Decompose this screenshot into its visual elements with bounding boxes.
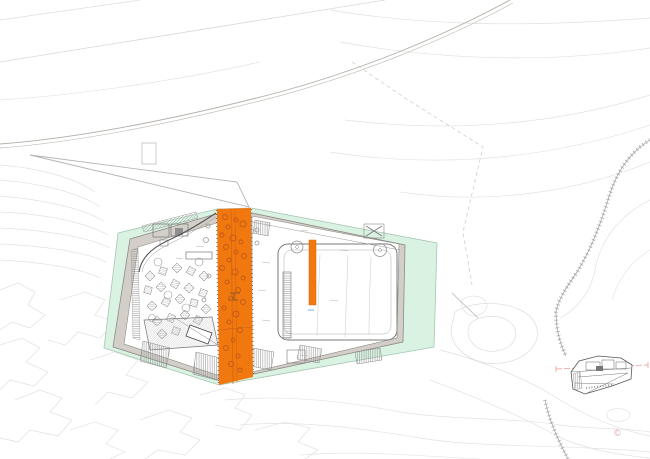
stair-hatch (250, 348, 274, 370)
contour-line (400, 162, 650, 197)
stair-hatch (253, 220, 270, 236)
contour-oval (607, 409, 630, 422)
roof-plane (30, 155, 249, 207)
contour-line (0, 0, 140, 20)
contour-line (345, 95, 650, 126)
contour-line (0, 165, 95, 192)
contour-line (0, 0, 385, 62)
trail-line (452, 293, 478, 318)
contour-line (0, 260, 100, 278)
contour-line (340, 42, 650, 58)
contour-line-jagged (0, 338, 48, 390)
contour-line-jagged (0, 283, 45, 330)
trail-line (556, 140, 650, 356)
contour-line (560, 200, 650, 318)
contour-line (0, 62, 260, 100)
orange-circulation-band (217, 208, 253, 385)
contour-line (612, 250, 650, 300)
contour-line-jagged (200, 388, 252, 430)
contour-line-jagged (0, 390, 72, 442)
contour-line (225, 398, 650, 432)
trail-ticks (556, 140, 650, 356)
contour-line-jagged (70, 422, 125, 459)
copyright-watermark: © (614, 428, 621, 438)
roof-skylight (142, 143, 156, 164)
stair-shaft (283, 272, 291, 338)
cafe-table (190, 299, 199, 308)
contour-blob (451, 303, 537, 363)
contour-line (0, 212, 108, 235)
contour-line-jagged (140, 410, 200, 459)
small-building-core (596, 366, 603, 371)
contour-line (330, 10, 650, 24)
contour-line (0, 244, 106, 262)
trail-line (545, 400, 568, 459)
orange-feature-strip (309, 240, 316, 305)
contour-line (330, 125, 650, 160)
contour-line-jagged (255, 422, 318, 459)
contour-blob (468, 316, 516, 351)
trail-ticks (545, 400, 568, 459)
contour-line (300, 453, 480, 459)
cafe-table (144, 286, 153, 295)
site-plan-svg: © (0, 0, 650, 459)
site-plan-canvas: © (0, 0, 650, 459)
contour-line-jagged (90, 352, 148, 405)
